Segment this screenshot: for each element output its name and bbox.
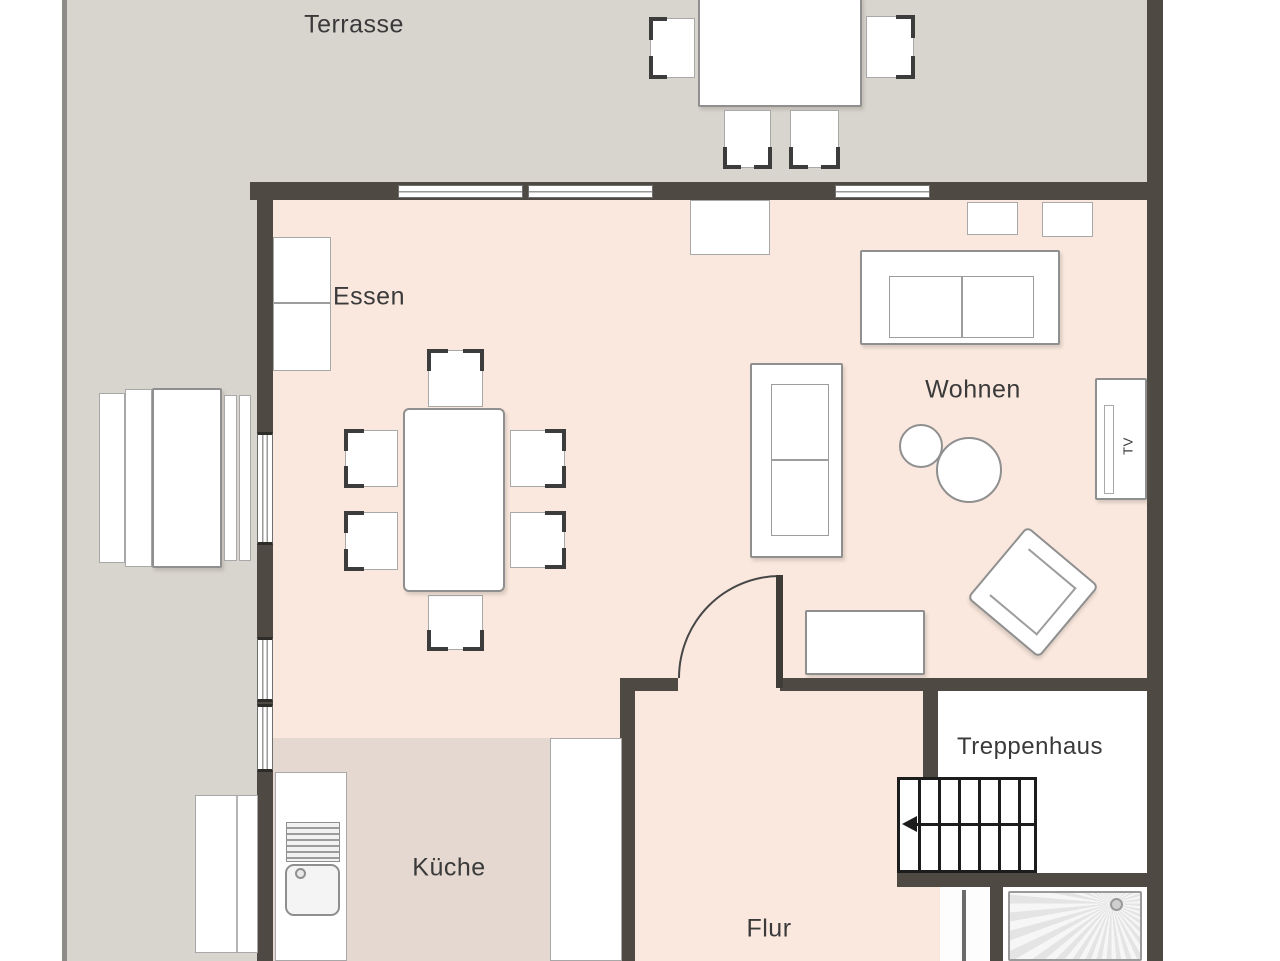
sideboard-at-door	[805, 610, 925, 675]
room-label-terrasse: Terrasse	[304, 11, 404, 40]
sofa-cushion-divider	[961, 277, 963, 337]
wall-kitchen-hall-divider	[620, 691, 635, 961]
sink-faucet	[295, 868, 306, 879]
terrace-boundary-line	[62, 0, 67, 961]
wall-hall-left-segment	[620, 678, 678, 691]
window-top-3	[835, 185, 930, 198]
door-leaf	[776, 575, 783, 688]
sofa-cushion-divider	[772, 459, 828, 461]
window-left-3	[257, 704, 273, 772]
side-table-round-large	[936, 437, 1002, 503]
dining-chair	[428, 350, 483, 407]
sink-drainboard	[286, 822, 340, 862]
window-top-1	[398, 185, 523, 198]
terrace-sideboard-divider	[236, 796, 238, 952]
stair-walkline	[908, 823, 1034, 826]
wall-below-stairs	[897, 873, 1163, 887]
shower-drain	[1110, 898, 1123, 911]
terrace-sideboard-bottom	[195, 795, 258, 953]
terrace-chair	[866, 16, 914, 78]
wall-shower-left	[990, 887, 1003, 961]
wall-left	[257, 182, 273, 961]
terrace-bench-left-outer	[99, 393, 125, 563]
floor-plan: TV Terrasse Essen Wohnen Küche Flur Trep…	[0, 0, 1280, 961]
armchair-inner	[989, 548, 1076, 635]
exterior-wall-right	[1147, 0, 1163, 961]
terrace-bench-right-outer	[239, 395, 251, 561]
dining-chair	[510, 430, 565, 487]
window-top-2	[528, 185, 653, 198]
terrace-table-top	[698, 0, 862, 107]
dining-table	[403, 408, 505, 592]
kitchen-counter-right	[550, 738, 622, 961]
terrace-bench-right-inner	[224, 395, 237, 561]
sofa-two-seater	[860, 250, 1060, 345]
dining-chair	[345, 512, 398, 570]
terrace-chair	[790, 110, 839, 168]
room-label-kueche: Küche	[412, 854, 485, 883]
terrace-table-left	[152, 388, 222, 568]
sofa-seat	[771, 384, 829, 536]
room-label-treppenhaus: Treppenhaus	[957, 733, 1103, 761]
wall-hall-right-segment	[780, 678, 1163, 691]
dining-chair	[345, 430, 398, 487]
wall-top	[250, 182, 1163, 200]
tv-label: TV	[1121, 437, 1136, 455]
room-label-flur: Flur	[746, 915, 791, 944]
dining-chair	[428, 595, 483, 650]
dining-chair	[510, 512, 565, 568]
wall-stool	[1042, 202, 1093, 237]
shower-tray	[1008, 891, 1142, 961]
window-left-2	[257, 637, 273, 702]
shower-door-leaf	[962, 890, 966, 961]
sofa-vertical	[750, 363, 843, 558]
wall-stairwell-left	[923, 691, 938, 777]
stair-direction-arrow	[902, 816, 917, 832]
room-label-essen: Essen	[333, 283, 405, 312]
stairs	[897, 777, 1037, 873]
wall-stool	[967, 202, 1018, 235]
terrace-bench-left-inner	[125, 389, 152, 567]
room-label-wohnen: Wohnen	[925, 376, 1021, 405]
cabinet-shelf-line	[274, 302, 330, 304]
sofa-seat	[889, 276, 1034, 338]
tv-screen	[1104, 405, 1114, 494]
sink-basin	[285, 864, 340, 916]
terrace-chair	[724, 110, 771, 168]
terrace-chair	[650, 18, 695, 78]
window-left-1	[257, 432, 273, 545]
sideboard-north	[690, 200, 770, 255]
dining-wall-cabinet	[273, 237, 331, 371]
